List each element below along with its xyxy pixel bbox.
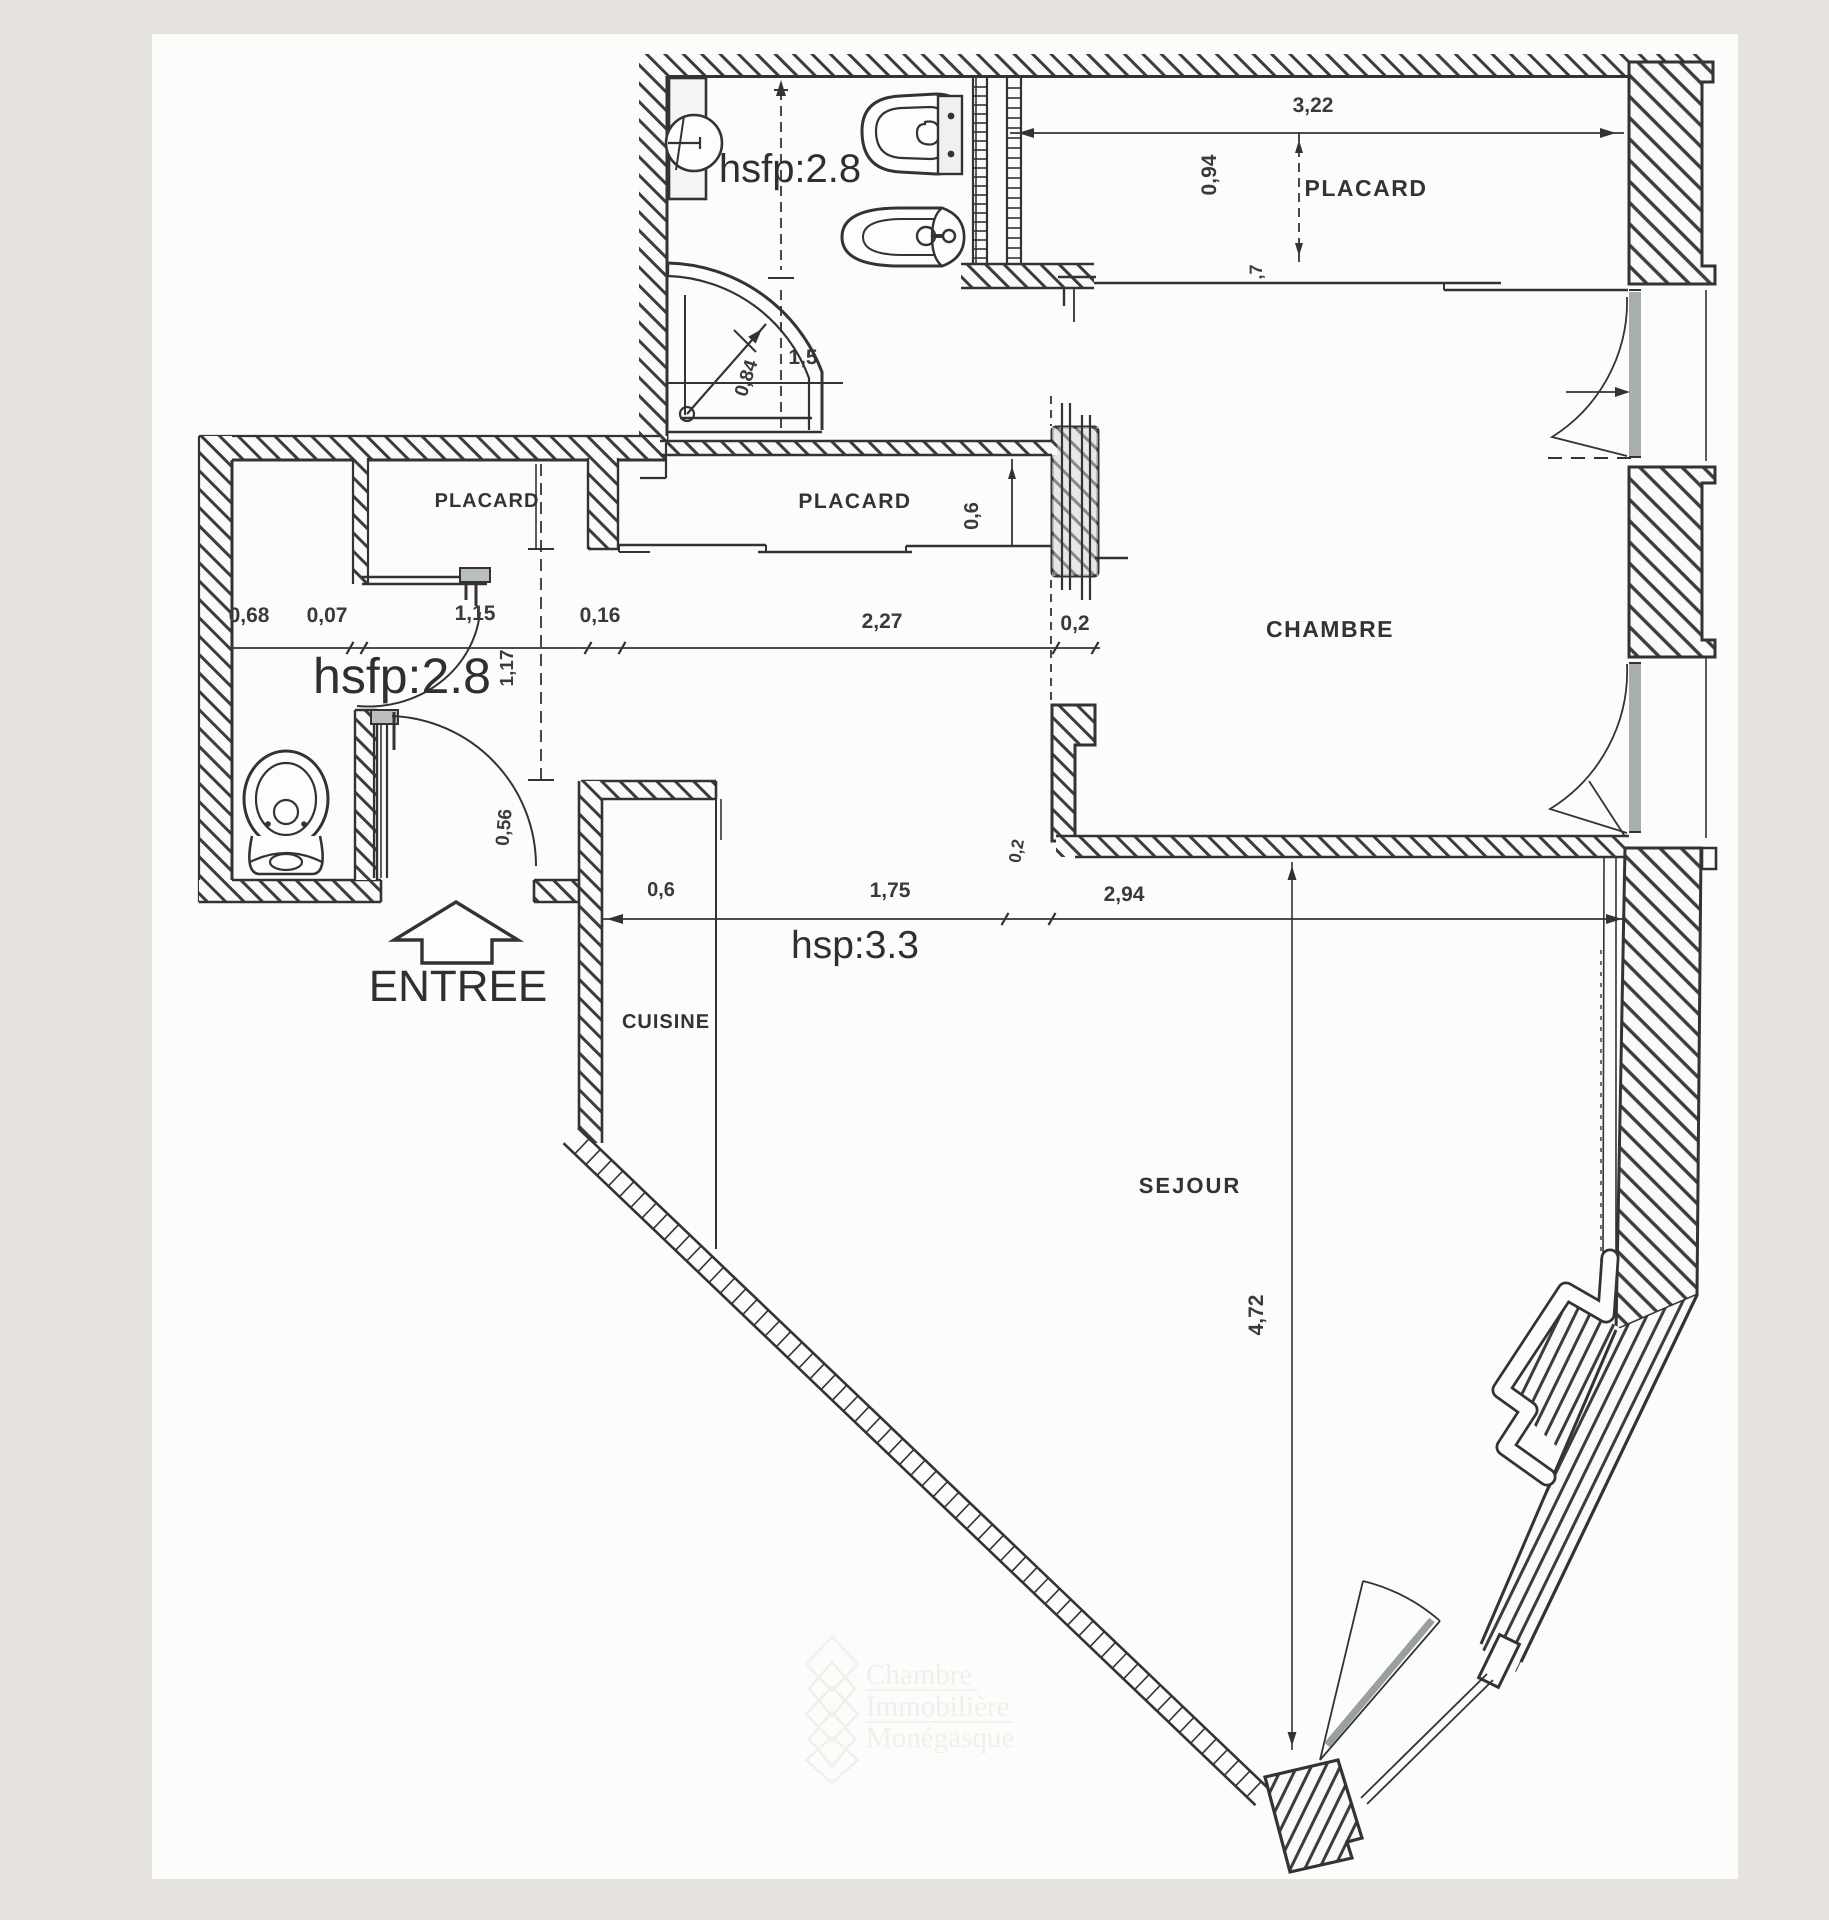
svg-text:CHAMBRE: CHAMBRE xyxy=(1266,616,1394,642)
svg-text:3,22: 3,22 xyxy=(1293,94,1334,117)
svg-text:0,6: 0,6 xyxy=(647,879,675,901)
svg-text:0,2: 0,2 xyxy=(1005,838,1028,865)
svg-text:0,16: 0,16 xyxy=(580,604,621,627)
svg-text:SEJOUR: SEJOUR xyxy=(1139,1173,1241,1198)
svg-text:0,56: 0,56 xyxy=(492,808,516,847)
svg-text:4,72: 4,72 xyxy=(1245,1295,1268,1336)
svg-text:1,75: 1,75 xyxy=(870,879,911,902)
svg-text:Monégasque: Monégasque xyxy=(866,1722,1014,1754)
svg-text:hsfp:2.8: hsfp:2.8 xyxy=(719,147,861,191)
svg-text:,7: ,7 xyxy=(1246,264,1266,279)
svg-text:Immobilière: Immobilière xyxy=(866,1691,1009,1723)
svg-text:hsfp:2.8: hsfp:2.8 xyxy=(313,648,491,704)
svg-text:hsp:3.3: hsp:3.3 xyxy=(791,924,919,967)
svg-text:1,17: 1,17 xyxy=(497,650,518,687)
svg-text:2,27: 2,27 xyxy=(862,610,903,633)
svg-text:ENTREE: ENTREE xyxy=(369,962,547,1011)
svg-text:PLACARD: PLACARD xyxy=(435,490,540,512)
svg-text:0,94: 0,94 xyxy=(1198,154,1221,195)
svg-text:PLACARD: PLACARD xyxy=(1305,175,1428,201)
svg-text:PLACARD: PLACARD xyxy=(798,490,911,513)
svg-text:CUISINE: CUISINE xyxy=(622,1011,710,1033)
svg-text:1,15: 1,15 xyxy=(455,602,496,625)
svg-text:Chambre: Chambre xyxy=(866,1659,972,1691)
svg-text:2,94: 2,94 xyxy=(1104,883,1145,906)
svg-text:0,6: 0,6 xyxy=(961,502,983,530)
svg-text:0,68: 0,68 xyxy=(229,604,270,627)
svg-text:0,2: 0,2 xyxy=(1060,612,1089,635)
svg-text:0,07: 0,07 xyxy=(307,604,348,627)
